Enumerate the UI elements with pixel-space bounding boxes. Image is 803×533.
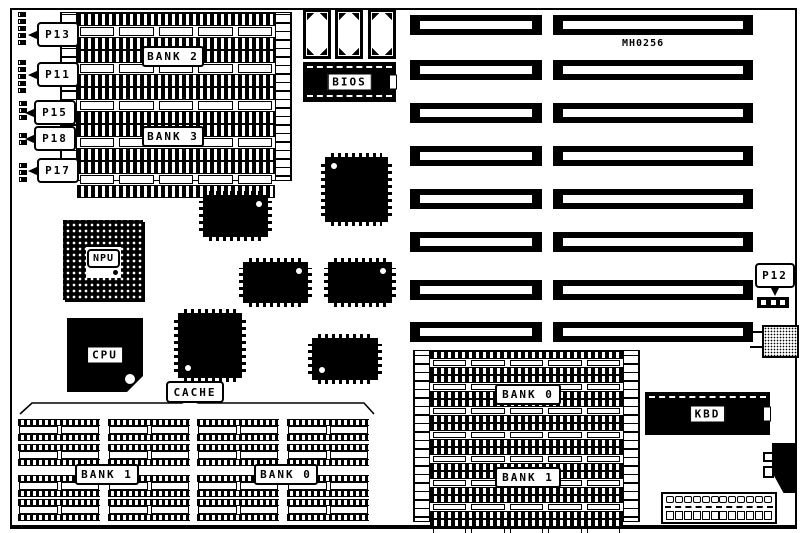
- qfp-chip: [203, 195, 268, 237]
- pin1-dot: [185, 365, 191, 371]
- qfp-chip: [312, 338, 378, 380]
- empty-socket-2: [335, 9, 363, 59]
- kbd-label: KBD: [690, 405, 726, 422]
- dip-socket: [108, 444, 190, 466]
- simm-rail-left: [414, 351, 430, 521]
- qfp-chip: [328, 262, 392, 303]
- isa-slot-8bit: [410, 189, 542, 209]
- simm-socket-row: [77, 87, 275, 124]
- pin-header-p11: [18, 60, 26, 93]
- empty-socket-3: [368, 9, 396, 59]
- bank2-label: BANK 2: [142, 46, 204, 67]
- simm-socket-row: [430, 351, 623, 375]
- isa-slot-8bit: [410, 146, 542, 166]
- power-pins-square: [666, 511, 772, 520]
- simm-block-bottom-right: [413, 350, 640, 522]
- isa-slot-8bit: [410, 232, 542, 252]
- empty-socket-1: [303, 9, 331, 59]
- isa-slot-16bit: [553, 103, 753, 123]
- pin1-dot: [125, 374, 135, 384]
- dip-socket: [197, 419, 279, 441]
- dip-socket: [18, 499, 100, 521]
- power-pins-round: [666, 496, 772, 503]
- crystal-lead: [750, 331, 762, 333]
- crystal-oscillator: [762, 325, 799, 358]
- simm-rows: [430, 351, 623, 521]
- dip-bank1-label: BANK 1: [75, 464, 139, 485]
- motherboard-diagram: BANK 2 BANK 3 P13 P11 P15 P18 P17 BIOS M…: [0, 0, 803, 533]
- simm-socket-row: [430, 423, 623, 447]
- npu-window: NPU: [86, 247, 121, 278]
- p18-label: P18: [34, 126, 76, 151]
- dip-socket: [197, 444, 279, 466]
- dip-bank0-label: BANK 0: [254, 464, 318, 485]
- isa-slot-16bit: [553, 15, 753, 35]
- dip-socket: [108, 419, 190, 441]
- p17-label: P17: [37, 158, 79, 183]
- cpu-label: CPU: [88, 348, 122, 363]
- simm-block-top-left: [60, 12, 292, 181]
- npu-label: NPU: [87, 249, 120, 268]
- chip-notch: [389, 75, 397, 90]
- power-divider: [665, 506, 773, 508]
- cpu-chip: CPU: [67, 318, 143, 392]
- bios-label: BIOS: [327, 74, 372, 91]
- isa-slot-16bit: [553, 280, 753, 300]
- p13-label: P13: [37, 22, 79, 47]
- simm-socket-row: [430, 495, 623, 519]
- npu-socket: NPU: [63, 220, 143, 300]
- qfp-chip: [325, 157, 388, 222]
- keyboard-connector-tab: [763, 452, 774, 462]
- isa-slot-16bit: [553, 189, 753, 209]
- isa-slot-8bit: [410, 15, 542, 35]
- board-model-label: MH0256: [622, 38, 664, 49]
- dip-socket: [18, 444, 100, 466]
- isa-slot-16bit: [553, 232, 753, 252]
- p15-label: P15: [34, 100, 76, 125]
- dip-socket: [287, 419, 369, 441]
- cache-label: CACHE: [166, 381, 224, 403]
- kbd-controller-chip: KBD: [645, 392, 770, 435]
- dip-socket: [108, 499, 190, 521]
- pin1-dot: [113, 270, 118, 275]
- pin1-dot: [296, 268, 302, 274]
- isa-slot-8bit: [410, 322, 542, 342]
- p11-label: P11: [37, 62, 79, 87]
- p12-label: P12: [755, 263, 795, 288]
- dip-socket: [287, 444, 369, 466]
- pin1-dot: [380, 268, 386, 274]
- simm-rail-right: [275, 13, 291, 180]
- pin-header-p13: [18, 12, 26, 45]
- simm-socket-row: [77, 13, 275, 50]
- simm-bank1-label: BANK 1: [495, 467, 561, 488]
- isa-slot-8bit: [410, 280, 542, 300]
- dip-socket: [197, 499, 279, 521]
- simm-bank0-label: BANK 0: [495, 384, 561, 405]
- isa-slot-16bit: [553, 60, 753, 80]
- simm-rail-right: [623, 351, 639, 521]
- keyboard-connector-tab: [763, 466, 774, 478]
- bank3-label: BANK 3: [142, 126, 204, 147]
- isa-slot-16bit: [553, 322, 753, 342]
- bios-chip: BIOS: [303, 62, 396, 102]
- dip-socket: [287, 499, 369, 521]
- power-connector: [661, 492, 777, 524]
- dip-socket: [18, 419, 100, 441]
- simm-rows: [77, 13, 275, 180]
- pin1-dot: [331, 163, 337, 169]
- chip-notch: [763, 406, 771, 421]
- isa-slot-8bit: [410, 60, 542, 80]
- isa-slot-8bit: [410, 103, 542, 123]
- qfp-chip: [178, 313, 242, 378]
- qfp-chip: [243, 262, 308, 303]
- pin-header-p12: [757, 297, 789, 308]
- pin-header-p17: [19, 163, 27, 182]
- pin1-dot: [256, 201, 262, 207]
- pin1-dot: [319, 367, 325, 373]
- isa-slot-16bit: [553, 146, 753, 166]
- simm-socket-row: [430, 519, 623, 533]
- crystal-lead: [750, 346, 762, 348]
